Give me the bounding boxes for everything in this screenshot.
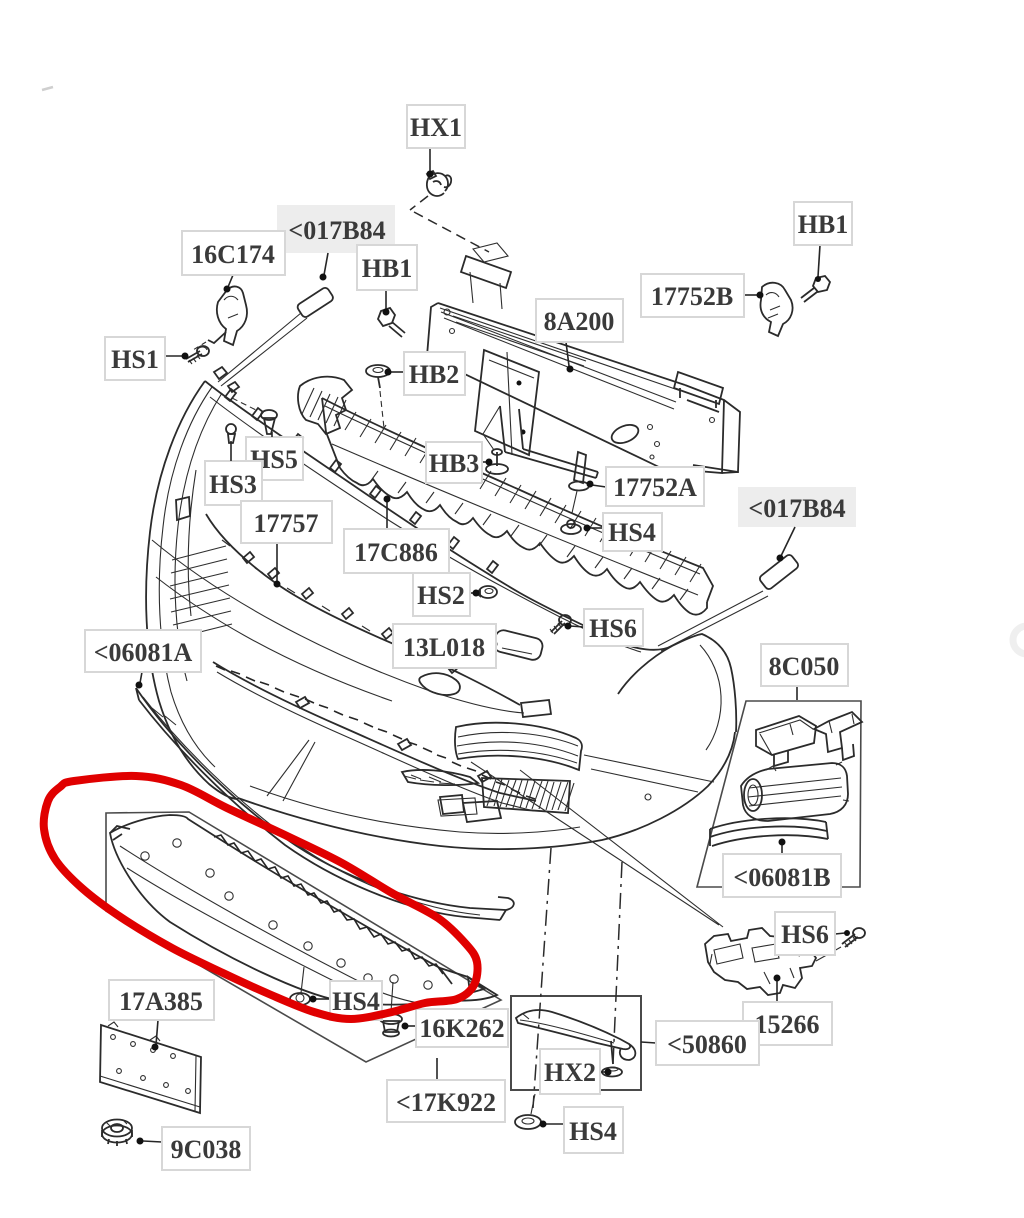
svg-text:13L018: 13L018 bbox=[403, 633, 485, 662]
svg-text:<17K922: <17K922 bbox=[396, 1088, 496, 1117]
svg-text:15266: 15266 bbox=[755, 1010, 820, 1039]
svg-text:8A200: 8A200 bbox=[544, 307, 615, 336]
svg-text:HS6: HS6 bbox=[781, 920, 829, 949]
svg-text:HB1: HB1 bbox=[362, 254, 413, 283]
svg-text:HB1: HB1 bbox=[798, 210, 849, 239]
svg-text:<017B84: <017B84 bbox=[748, 494, 845, 523]
svg-text:16K262: 16K262 bbox=[419, 1014, 504, 1043]
svg-text:HB3: HB3 bbox=[429, 449, 480, 478]
svg-text:<06081A: <06081A bbox=[94, 638, 193, 667]
svg-text:HS4: HS4 bbox=[332, 987, 380, 1016]
svg-text:<50860: <50860 bbox=[667, 1030, 747, 1059]
svg-text:HS3: HS3 bbox=[209, 470, 257, 499]
svg-text:HS4: HS4 bbox=[569, 1117, 617, 1146]
svg-text:<06081B: <06081B bbox=[733, 863, 830, 892]
svg-text:8C050: 8C050 bbox=[769, 652, 840, 681]
svg-text:17752B: 17752B bbox=[651, 282, 733, 311]
svg-text:17A385: 17A385 bbox=[119, 987, 203, 1016]
svg-text:HS6: HS6 bbox=[589, 614, 637, 643]
svg-text:<017B84: <017B84 bbox=[288, 216, 385, 245]
svg-text:HB2: HB2 bbox=[409, 360, 460, 389]
svg-text:HS4: HS4 bbox=[608, 518, 656, 547]
svg-text:16C174: 16C174 bbox=[191, 240, 275, 269]
svg-text:HX1: HX1 bbox=[410, 113, 462, 142]
svg-text:17C886: 17C886 bbox=[354, 538, 438, 567]
svg-text:17752A: 17752A bbox=[613, 473, 697, 502]
svg-text:HS2: HS2 bbox=[417, 581, 465, 610]
svg-text:HS1: HS1 bbox=[111, 345, 159, 374]
svg-text:17757: 17757 bbox=[254, 509, 319, 538]
svg-text:9C038: 9C038 bbox=[171, 1135, 242, 1164]
svg-text:HX2: HX2 bbox=[544, 1058, 596, 1087]
